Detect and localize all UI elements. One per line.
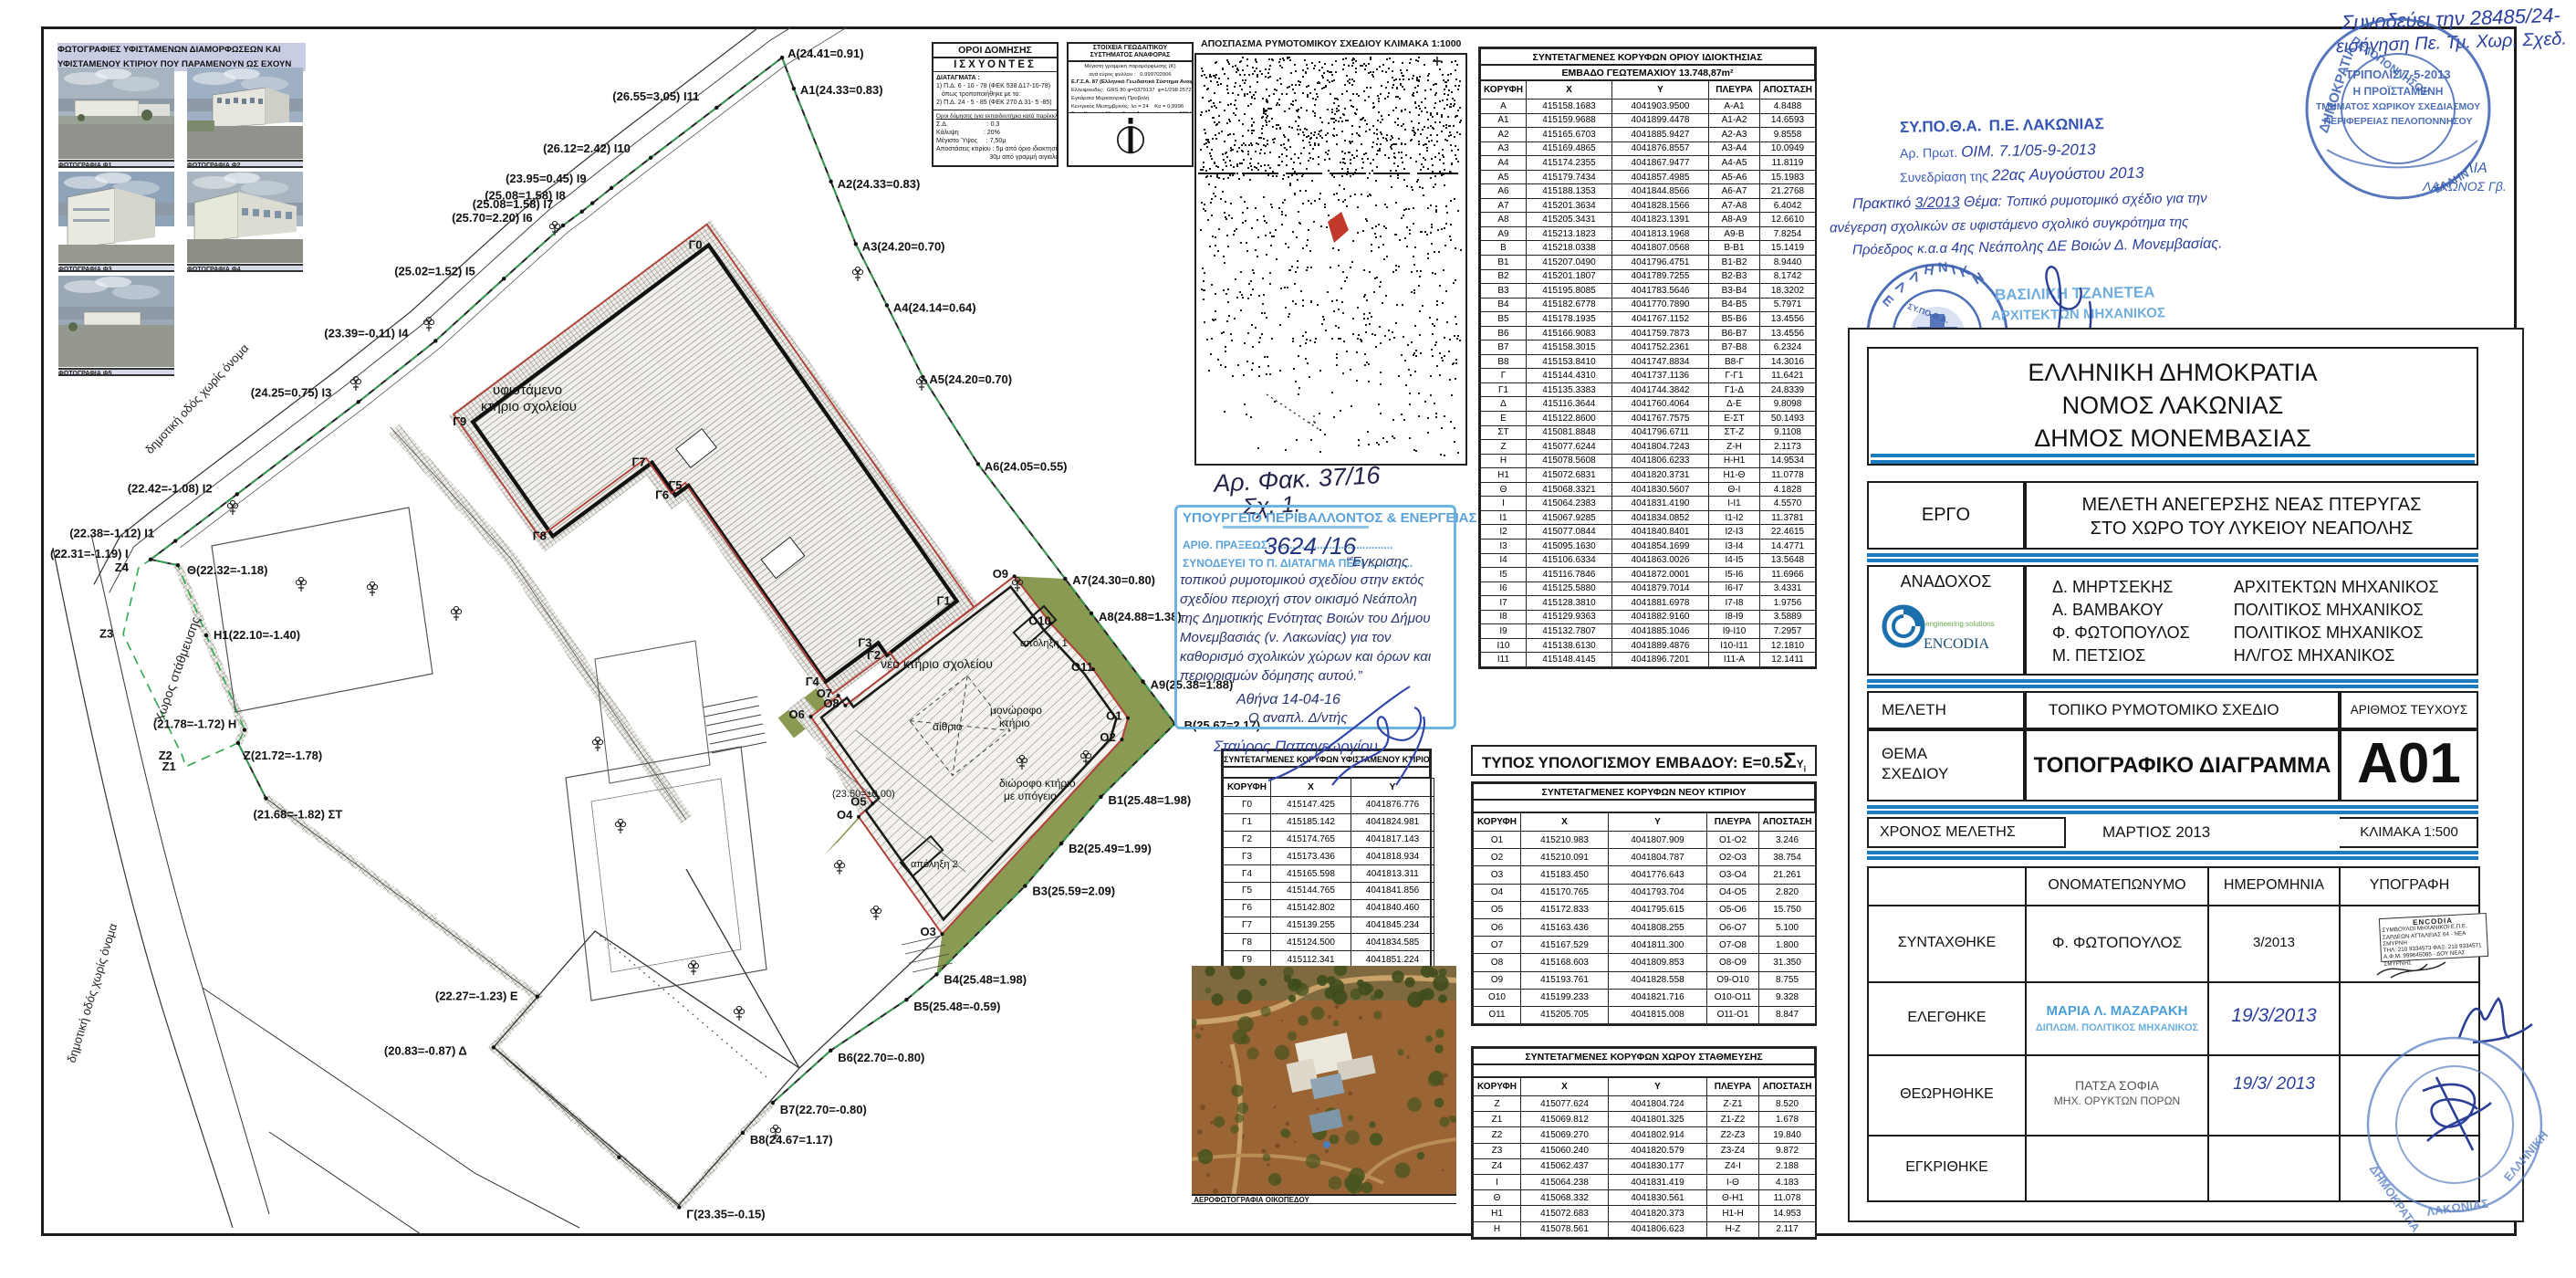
- svg-text:ΛΑΚΩΝΙΑΣ: ΛΑΚΩΝΙΑΣ: [2425, 1197, 2489, 1219]
- svg-text:engineering solutions: engineering solutions: [1925, 620, 1995, 628]
- svg-text:Ε: Ε: [1879, 292, 1896, 309]
- svg-text:Η: Η: [1923, 262, 1935, 278]
- svg-text:Ν: Ν: [1937, 259, 1948, 276]
- svg-text:Η: Η: [1970, 269, 1987, 288]
- svg-text:ENCODIA: ENCODIA: [1924, 636, 1989, 652]
- svg-text:ΠΕΡΙΦΕΡΕΙΑΣ ΠΕΛΟΠΟΝΝΗΣΟΥ: ΠΕΡΙΦΕΡΕΙΑΣ ΠΕΛΟΠΟΝΝΗΣΟΥ: [2323, 116, 2472, 127]
- svg-text:Ι: Ι: [1950, 262, 1957, 278]
- svg-text:ΔΗΜΟΚΡΑΤΙΑ: ΔΗΜΟΚΡΑΤΙΑ: [2367, 1162, 2424, 1232]
